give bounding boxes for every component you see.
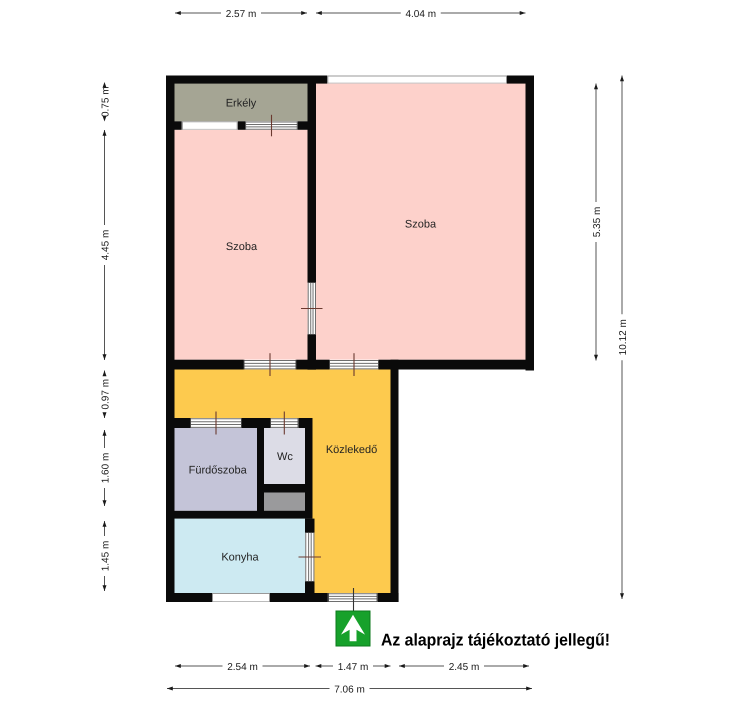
svg-text:Az alaprajz tájékoztató jelleg: Az alaprajz tájékoztató jellegű! [381,631,610,650]
svg-text:2.54 m: 2.54 m [227,662,258,673]
svg-text:Szoba: Szoba [405,219,437,231]
svg-text:0.97 m: 0.97 m [100,379,111,410]
svg-text:0.75 m: 0.75 m [100,86,111,117]
svg-text:1.47 m: 1.47 m [338,662,369,673]
svg-text:Konyha: Konyha [221,552,259,564]
svg-text:4.45 m: 4.45 m [100,230,111,261]
svg-text:5.35 m: 5.35 m [592,207,603,238]
svg-text:Wc: Wc [277,451,293,463]
svg-text:1.45 m: 1.45 m [100,541,111,572]
svg-text:1.60 m: 1.60 m [100,453,111,484]
svg-text:Közlekedő: Közlekedő [326,444,377,456]
svg-text:7.06 m: 7.06 m [334,684,365,695]
svg-text:2.57 m: 2.57 m [226,9,257,20]
svg-text:Szoba: Szoba [226,241,258,253]
svg-text:2.45 m: 2.45 m [449,662,480,673]
svg-text:10.12 m: 10.12 m [618,319,629,355]
svg-text:Erkély: Erkély [226,98,257,110]
svg-text:4.04 m: 4.04 m [405,9,436,20]
svg-text:Fürdőszoba: Fürdőszoba [189,465,248,477]
